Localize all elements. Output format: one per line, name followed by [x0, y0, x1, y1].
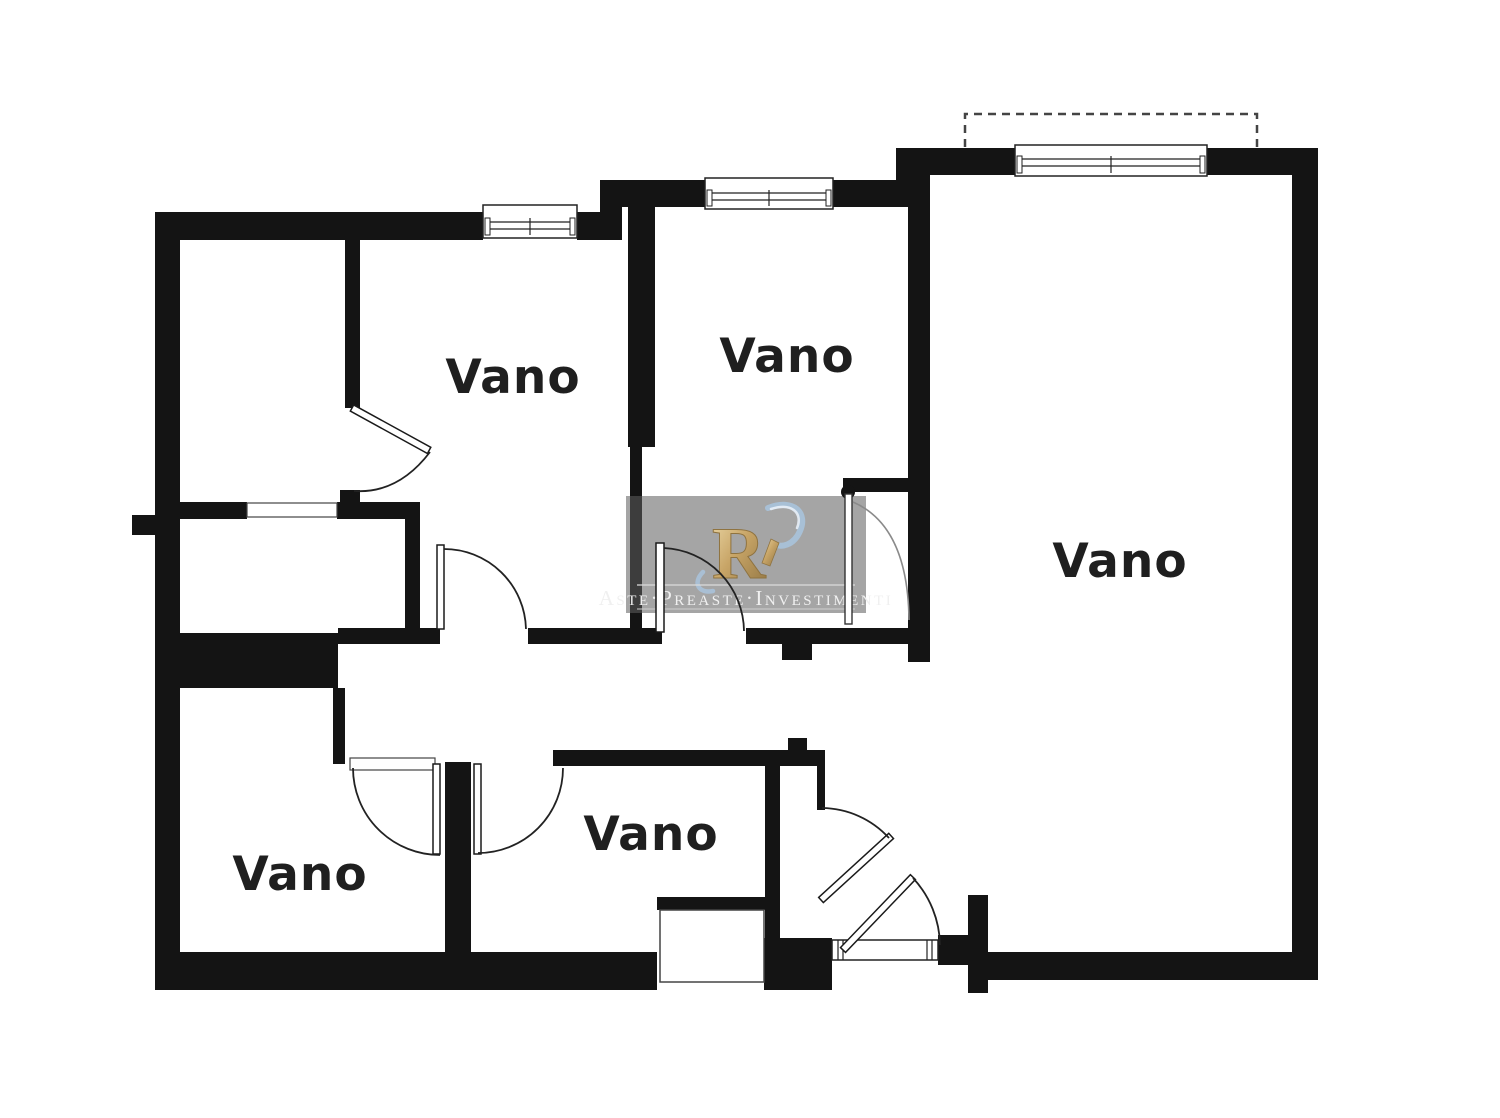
floor-plan-page: R Aste·Preaste·Investimenti — [0, 0, 1500, 1118]
balcony-dashed-outline — [965, 114, 1257, 147]
door-swing-symbol-d7 — [819, 808, 894, 903]
logo-monogram-letter: R — [712, 513, 767, 595]
floor-plan-canvas: R Aste·Preaste·Investimenti — [0, 0, 1500, 1118]
room-label-bottom-left: Vano — [232, 847, 367, 902]
niche-outline — [660, 910, 764, 982]
door-swing-symbol-d2 — [437, 545, 526, 629]
doors — [350, 405, 940, 952]
window-symbol-top-middle — [705, 178, 833, 209]
window-symbol-top-right — [1015, 145, 1207, 176]
room-label-bottom-middle: Vano — [583, 807, 718, 862]
door-swing-symbol-d6 — [474, 764, 563, 854]
room-label-right: Vano — [1052, 534, 1187, 589]
door-swing-symbol-d5 — [353, 764, 440, 855]
room-e-doorway — [350, 758, 435, 770]
closet-doorway — [247, 503, 337, 517]
door-swing-symbol-d1 — [350, 405, 430, 491]
room-label-top-left: Vano — [445, 350, 580, 405]
room-labels: Vano Vano Vano Vano Vano — [232, 329, 1187, 902]
room-label-top-middle: Vano — [719, 329, 854, 384]
window-symbol-top-left — [483, 205, 577, 238]
